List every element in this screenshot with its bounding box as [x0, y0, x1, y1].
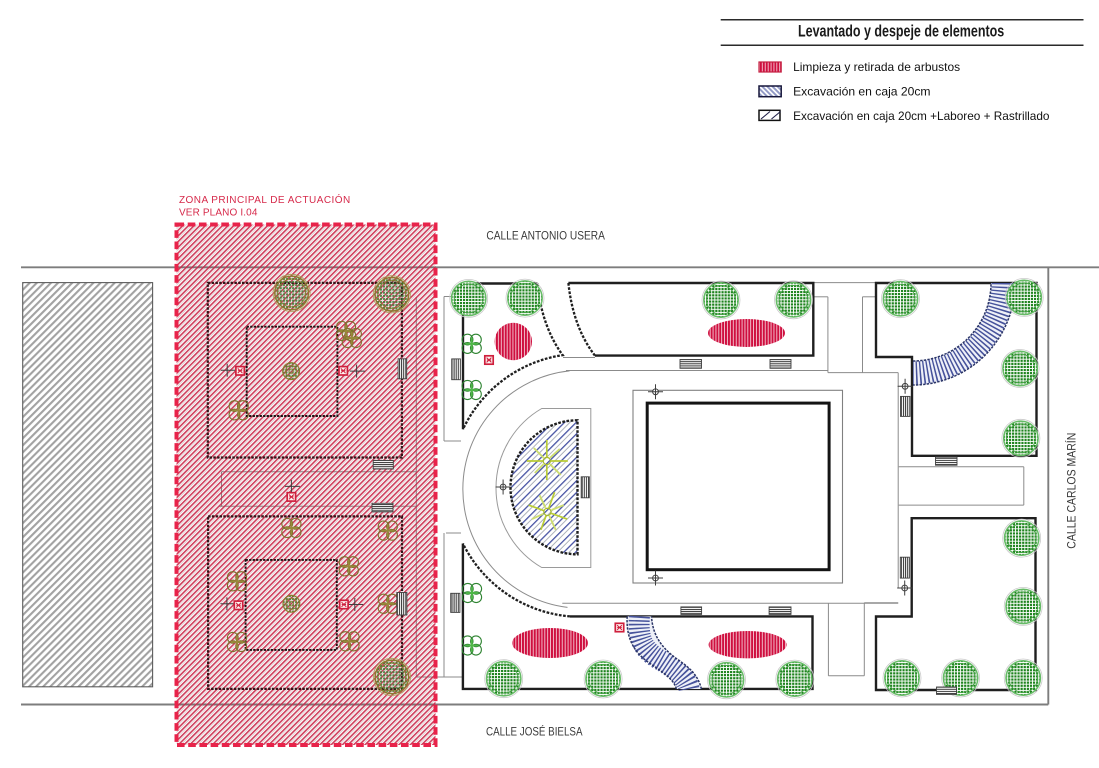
- svg-text:Excavación en caja 20cm +Labor: Excavación en caja 20cm +Laboreo + Rastr…: [793, 110, 1050, 123]
- svg-text:Levantado y despeje de element: Levantado y despeje de elementos: [798, 22, 1004, 40]
- svg-text:ZONA PRINCIPAL DE ACTUACIÓN: ZONA PRINCIPAL DE ACTUACIÓN: [179, 193, 350, 206]
- svg-text:Limpieza y retirada de arbusto: Limpieza y retirada de arbustos: [793, 61, 960, 74]
- svg-text:CALLE CARLOS MARÍN: CALLE CARLOS MARÍN: [1066, 433, 1079, 549]
- svg-text:Excavación en caja 20cm: Excavación en caja 20cm: [793, 86, 930, 99]
- svg-text:CALLE JOSÉ BIELSA: CALLE JOSÉ BIELSA: [486, 725, 583, 738]
- svg-text:VER PLANO I.04: VER PLANO I.04: [179, 208, 258, 219]
- svg-text:CALLE ANTONIO USERA: CALLE ANTONIO USERA: [486, 231, 605, 243]
